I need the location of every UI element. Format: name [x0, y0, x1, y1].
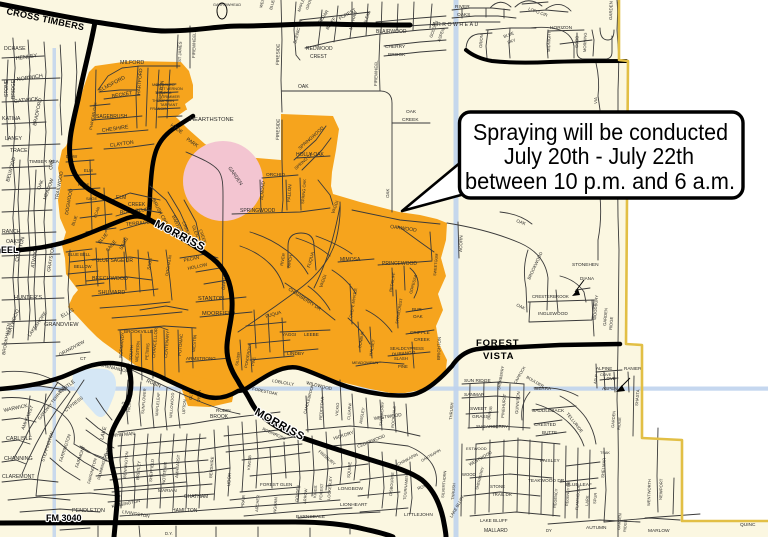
- svg-text:GARDEN: GARDEN: [608, 1, 614, 20]
- svg-text:July 20th - July 22th: July 20th - July 22th: [504, 143, 694, 169]
- svg-text:BLUE SAGE DR: BLUE SAGE DR: [96, 258, 133, 264]
- svg-text:MORNING: MORNING: [582, 33, 588, 53]
- svg-text:BRIGHTON: BRIGHTON: [436, 337, 442, 360]
- svg-text:ROBIN: ROBIN: [216, 408, 231, 413]
- svg-text:SAGEBRUSH: SAGEBRUSH: [96, 114, 128, 120]
- svg-text:LEEBE: LEEBE: [304, 332, 319, 337]
- svg-text:FOREST GLEN: FOREST GLEN: [260, 482, 292, 487]
- svg-text:LONGBOW: LONGBOW: [338, 486, 364, 492]
- svg-text:SHUMARD: SHUMARD: [98, 290, 125, 296]
- svg-text:GOOD: GOOD: [574, 36, 579, 49]
- svg-text:SLASH: SLASH: [394, 356, 408, 361]
- svg-text:MARIAN: MARIAN: [158, 488, 177, 494]
- svg-text:WENTWORTH: WENTWORTH: [646, 479, 652, 506]
- svg-text:GARROWHEAD: GARROWHEAD: [213, 3, 241, 7]
- svg-text:ASPEN: ASPEN: [602, 386, 618, 391]
- svg-text:BRIDGE: BRIDGE: [11, 79, 17, 99]
- svg-text:BUTTE: BUTTE: [542, 430, 557, 435]
- svg-text:BLUE BELL: BLUE BELL: [68, 252, 91, 257]
- svg-text:LITTLEJOHN: LITTLEJOHN: [404, 512, 433, 518]
- svg-text:PRINCEWOOD: PRINCEWOOD: [382, 261, 417, 267]
- svg-text:STANTON: STANTON: [198, 296, 224, 302]
- svg-text:D.Y.: D.Y.: [165, 531, 173, 536]
- svg-text:RANIER: RANIER: [624, 366, 642, 371]
- svg-text:CRESTERBROOK: CRESTERBROOK: [532, 294, 569, 299]
- svg-text:CREST: CREST: [310, 54, 327, 60]
- svg-text:ORCHID: ORCHID: [266, 172, 285, 178]
- svg-text:OAK: OAK: [413, 314, 424, 319]
- svg-text:HAMILTON: HAMILTON: [172, 508, 198, 514]
- svg-text:STONEHEN: STONEHEN: [572, 262, 599, 268]
- svg-text:HORIZON: HORIZON: [550, 25, 573, 31]
- svg-text:ACORN: ACORN: [458, 235, 464, 252]
- svg-text:NEWPORT: NEWPORT: [658, 478, 664, 500]
- svg-text:ESTWOOD: ESTWOOD: [466, 446, 487, 451]
- svg-text:ELM: ELM: [84, 168, 93, 173]
- svg-text:STONE: STONE: [490, 484, 505, 489]
- svg-text:SUGARBERRY: SUGARBERRY: [476, 424, 508, 429]
- svg-text:WOOD: WOOD: [462, 472, 476, 477]
- svg-text:ALPINE: ALPINE: [596, 366, 612, 371]
- svg-text:HOLLY OAK: HOLLY OAK: [296, 152, 325, 158]
- svg-text:CHATHAM: CHATHAM: [184, 494, 208, 500]
- svg-text:MALLARD: MALLARD: [484, 528, 508, 534]
- svg-text:VISTA: VISTA: [483, 351, 514, 362]
- svg-text:OAK: OAK: [406, 109, 417, 115]
- svg-text:RANCH: RANCH: [2, 229, 21, 235]
- svg-text:Spraying will be conducted: Spraying will be conducted: [473, 119, 728, 145]
- svg-text:BUR: BUR: [412, 307, 422, 312]
- svg-text:SPRINGWOOD: SPRINGWOOD: [240, 208, 276, 214]
- svg-text:DY: DY: [546, 528, 552, 533]
- svg-text:KATINA: KATINA: [2, 116, 21, 122]
- svg-text:BROOKVILLE: BROOKVILLE: [124, 329, 153, 334]
- svg-text:MILFORD: MILFORD: [120, 60, 144, 66]
- svg-text:FIRESIDE: FIRESIDE: [275, 119, 281, 140]
- svg-text:ARROWHEAD: ARROWHEAD: [432, 22, 480, 28]
- svg-text:GRANDVIEW: GRANDVIEW: [44, 322, 79, 328]
- svg-text:MIMOSA: MIMOSA: [340, 257, 361, 263]
- svg-text:YAGGI: YAGGI: [282, 332, 296, 337]
- svg-text:CHANNING: CHANNING: [4, 456, 33, 462]
- svg-text:RIVER: RIVER: [455, 4, 470, 10]
- svg-text:CRESTED: CRESTED: [534, 422, 557, 427]
- svg-text:SADDLEBACK: SADDLEBACK: [532, 408, 565, 414]
- svg-text:VIA: VIA: [593, 97, 598, 104]
- svg-text:LIONHEART: LIONHEART: [340, 502, 367, 508]
- svg-text:QUINC: QUINC: [740, 522, 756, 528]
- svg-text:TRIMMER: TRIMMER: [162, 95, 180, 99]
- svg-text:TRACE: TRACE: [10, 148, 28, 154]
- svg-text:CARLISLE: CARLISLE: [6, 436, 32, 442]
- svg-text:FIREWHEEL: FIREWHEEL: [191, 32, 197, 58]
- svg-text:BROOK: BROOK: [388, 52, 406, 58]
- svg-text:ELM: ELM: [116, 195, 126, 201]
- svg-text:SANMAR: SANMAR: [464, 392, 485, 398]
- svg-text:MEADOWRUN: MEADOWRUN: [352, 360, 379, 365]
- svg-text:SAGE: SAGE: [86, 196, 97, 201]
- svg-text:CHERRY: CHERRY: [385, 44, 406, 50]
- svg-text:FIREWHEEL: FIREWHEEL: [373, 60, 379, 86]
- svg-text:FOREST: FOREST: [476, 338, 519, 349]
- svg-text:LARK: LARK: [584, 495, 590, 506]
- svg-text:MIDNIGHT: MIDNIGHT: [546, 31, 552, 52]
- svg-text:REDWOOD: REDWOOD: [306, 46, 333, 52]
- svg-text:DCHASE: DCHASE: [4, 46, 26, 52]
- svg-text:FM 3040: FM 3040: [46, 513, 82, 523]
- svg-text:OAKS: OAKS: [457, 12, 470, 18]
- svg-text:EEL: EEL: [1, 245, 19, 255]
- svg-text:OAK: OAK: [385, 189, 390, 199]
- svg-text:BELLOW: BELLOW: [74, 264, 92, 269]
- svg-text:ARMSTRONG: ARMSTRONG: [186, 356, 216, 361]
- svg-text:SUN RIDGE: SUN RIDGE: [464, 378, 491, 384]
- svg-text:CRIPPLE: CRIPPLE: [410, 330, 430, 335]
- svg-text:INGLEWOOD: INGLEWOOD: [538, 311, 568, 317]
- svg-text:SWEET: SWEET: [470, 406, 487, 412]
- svg-text:AUTUMN: AUTUMN: [586, 525, 607, 531]
- svg-text:PINE: PINE: [398, 364, 408, 369]
- svg-text:MT VERNON: MT VERNON: [160, 87, 183, 91]
- svg-text:ST JAMES: ST JAMES: [177, 41, 183, 62]
- svg-text:PAISLEY: PAISLEY: [540, 458, 560, 464]
- svg-text:SPUR: SPUR: [592, 492, 598, 504]
- svg-text:TSAK: TSAK: [600, 451, 610, 455]
- svg-text:BLAIRWOOD: BLAIRWOOD: [376, 29, 407, 35]
- svg-text:DIANA: DIANA: [580, 276, 595, 281]
- svg-text:TRAIL DR: TRAIL DR: [492, 492, 512, 497]
- svg-text:SEALDCYPRESS: SEALDCYPRESS: [390, 346, 424, 351]
- svg-text:HUNTER'S: HUNTER'S: [14, 295, 42, 301]
- svg-text:OAK: OAK: [298, 84, 309, 90]
- svg-text:LAKE BLUFF: LAKE BLUFF: [480, 518, 508, 523]
- svg-text:FIRESIDE: FIRESIDE: [275, 44, 281, 65]
- svg-text:TEAKWOOD DR: TEAKWOOD DR: [528, 478, 565, 484]
- svg-text:CREEK: CREEK: [414, 337, 431, 342]
- svg-text:BROOK: BROOK: [210, 414, 229, 420]
- svg-text:between 10 p.m. and 6 a.m.: between 10 p.m. and 6 a.m.: [465, 168, 735, 194]
- svg-text:CLAREMONT: CLAREMONT: [2, 474, 35, 480]
- svg-text:CREEK: CREEK: [402, 117, 419, 123]
- svg-text:COVE: COVE: [600, 372, 612, 377]
- svg-text:BARNSDALE: BARNSDALE: [296, 514, 325, 520]
- svg-text:CT: CT: [80, 356, 86, 361]
- svg-text:MARLOW: MARLOW: [648, 528, 670, 534]
- svg-text:FRANCIS: FRANCIS: [150, 107, 167, 111]
- svg-text:HEARTHSTONE: HEARTHSTONE: [190, 117, 234, 123]
